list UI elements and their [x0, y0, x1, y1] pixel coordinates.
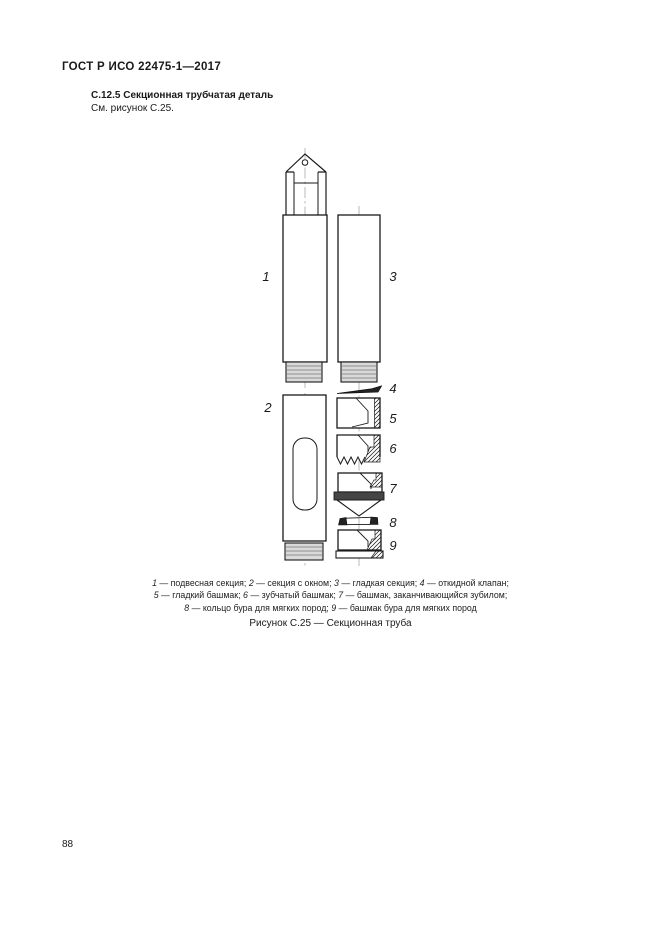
part-9-soft-ground-shoe	[336, 530, 383, 558]
part-label-3: 3	[389, 269, 397, 284]
figure-caption: Рисунок С.25 — Секционная труба	[0, 618, 661, 629]
document-page: ГОСТ Р ИСО 22475-1—2017 С.12.5 Секционна…	[0, 0, 661, 935]
part-7-chisel-shoe	[334, 473, 384, 516]
part-label-7: 7	[389, 481, 397, 496]
figure-c25-drawing: 1 3 2 4 5	[230, 140, 410, 580]
legend-line: 1 — подвесная секция; 2 — секция с окном…	[70, 577, 591, 589]
figure-legend: 1 — подвесная секция; 2 — секция с окном…	[70, 577, 591, 614]
part-8-soft-ground-ring	[339, 517, 379, 525]
part-label-4: 4	[389, 381, 396, 396]
legend-item-text: — подвесная секция;	[157, 578, 249, 588]
legend-item-text: — гладкий башмак;	[159, 590, 243, 600]
part-label-8: 8	[389, 515, 397, 530]
part-label-9: 9	[389, 538, 396, 553]
document-header: ГОСТ Р ИСО 22475-1—2017	[62, 61, 221, 73]
part-label-6: 6	[389, 441, 397, 456]
legend-line: 8 — кольцо бура для мягких пород; 9 — ба…	[70, 602, 591, 614]
legend-line: 5 — гладкий башмак; 6 — зубчатый башмак;…	[70, 589, 591, 601]
part-2-window-section	[283, 395, 326, 560]
legend-item-text: — башмак, заканчивающийся зубилом;	[343, 590, 507, 600]
legend-item-text: — кольцо бура для мягких пород;	[189, 603, 331, 613]
part-6-toothed-shoe	[337, 435, 380, 464]
section-heading: С.12.5 Секционная трубчатая деталь	[91, 90, 273, 101]
legend-item-text: — откидной клапан;	[425, 578, 509, 588]
part-label-1: 1	[262, 269, 269, 284]
part-3-plain-section	[338, 215, 380, 382]
section-reference: См. рисунок С.25.	[91, 103, 174, 114]
part-label-5: 5	[389, 411, 397, 426]
legend-item-text: — башмак бура для мягких пород	[336, 603, 477, 613]
legend-item-text: — гладкая секция;	[339, 578, 420, 588]
part-5-plain-shoe	[337, 398, 380, 428]
part-label-2: 2	[263, 400, 272, 415]
legend-item-text: — секция с окном;	[254, 578, 334, 588]
legend-item-text: — зубчатый башмак;	[248, 590, 338, 600]
page-number: 88	[62, 839, 73, 850]
